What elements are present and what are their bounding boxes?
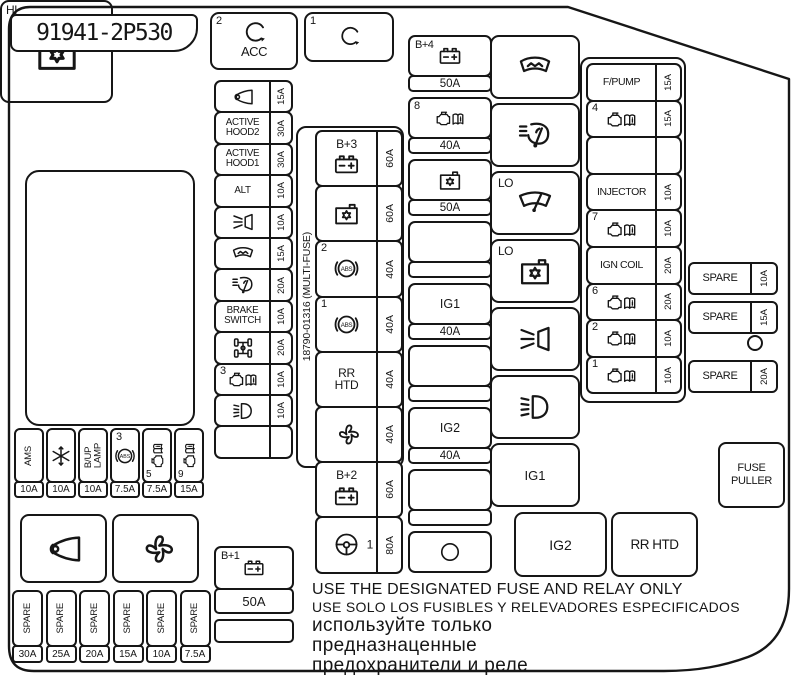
fuse-symbol-cell: [216, 396, 269, 425]
amp-rating: 7.5A: [115, 484, 135, 495]
amp-rating: 20A: [663, 293, 674, 310]
fuse-label: ACTIVEHOOD1: [226, 149, 260, 170]
fuse-symbol-cell: [317, 187, 376, 240]
fuse-symbol-cell: 4: [588, 102, 655, 137]
fuse-slot: RRHTD40A: [315, 351, 403, 408]
driveline-icon: [231, 336, 255, 360]
amp-rating: 40A: [384, 370, 396, 389]
amp-rating: 20A: [276, 339, 287, 356]
fuse-rating-cell: 10A: [269, 396, 291, 425]
fuse-label: IG1: [440, 297, 460, 311]
amp-rating: 20A: [759, 368, 770, 385]
amp-rating: 10A: [276, 308, 287, 325]
fuse-rating-cell: 40A: [376, 408, 401, 461]
relay-slot: [490, 375, 580, 439]
defroster-icon: [231, 242, 255, 266]
fuse-symbol-cell: [46, 428, 76, 483]
fuse-rating-cell: 50A: [408, 199, 492, 216]
fuse-rating-cell: 10A: [655, 321, 680, 356]
fuse-slot: INJECTOR10A: [586, 173, 682, 212]
amp-rating: 10A: [52, 484, 69, 495]
washer-wiper-icon: [517, 117, 553, 153]
fuse-slot: [586, 136, 682, 175]
fuse-symbol-cell: [216, 208, 269, 237]
engine-book-icon: [606, 219, 637, 239]
relay-number: 2: [216, 15, 222, 27]
fuse-symbol-cell: RRHTD: [317, 353, 376, 406]
svg-text:ABS: ABS: [120, 453, 131, 459]
fuse-label: ACTIVEHOOD2: [226, 118, 260, 139]
note-line: USE SOLO LOS FUSIBLES Y RELEVADORES ESPE…: [312, 599, 798, 616]
fan-icon: [332, 420, 361, 449]
fuse-puller-box: FUSE PULLER: [718, 442, 785, 508]
fuse-label: B+1: [221, 550, 239, 562]
fuse-number: 1: [592, 359, 598, 371]
relay-slot: LO: [490, 239, 580, 303]
fuse-label: SPARE: [23, 603, 33, 634]
fuse-slot: 915A: [174, 428, 204, 498]
amp-rating: 30A: [276, 151, 287, 168]
relay-ig2-box: IG2: [514, 512, 607, 577]
fuse-rating-cell: 25A: [46, 645, 77, 663]
wiper-icon: [517, 185, 553, 221]
fuse-slot: 840A: [408, 97, 492, 154]
fuse-symbol-cell: 1ABS: [317, 298, 376, 351]
relay-label: HI: [6, 3, 17, 17]
fuse-rating-cell: 7.5A: [142, 481, 172, 498]
amp-rating: 60A: [384, 204, 396, 223]
fuse-rating-cell: 10A: [78, 481, 108, 498]
note-line: предохранители и реле: [312, 656, 798, 675]
fuse-slot: SPARE20A: [79, 590, 110, 663]
fuse-label: BRAKESWITCH: [224, 306, 261, 327]
fuse-rating-cell: 10A: [14, 481, 44, 498]
multifuse-code: 18790-01316 (MULTI-FUSE): [297, 128, 316, 466]
amp-rating: 20A: [663, 257, 674, 274]
module-icon: [517, 253, 553, 289]
amp-rating: 30A: [276, 120, 287, 137]
fuse-rating-cell: 40A: [408, 447, 492, 464]
note-line: предназнаценные: [312, 636, 798, 655]
fuse-slot: 57.5A: [142, 428, 172, 498]
fuse-rating-cell: 15A: [655, 102, 680, 137]
amp-rating: 10A: [759, 270, 770, 287]
fuse-symbol-cell: B+2: [317, 463, 376, 516]
position-label: LO: [498, 244, 513, 258]
relay-slot: LO: [490, 171, 580, 235]
bottom-left-fuse-row: AMS10A10AB/UPLAMP10A3ABS7.5A57.5A915A: [14, 428, 204, 498]
fuse-rating-cell: 10A: [750, 264, 776, 293]
battery-icon: [437, 43, 463, 69]
fuse-slot: B+1: [214, 546, 294, 590]
fuse-rating-cell: 15A: [113, 645, 144, 663]
fuse-number: 2: [321, 243, 327, 255]
fuse-rating-cell: 15A: [750, 303, 776, 332]
fuse-label: SPARE: [190, 603, 200, 634]
fuse-label: B/UPLAMP: [84, 443, 103, 468]
amp-rating: 30A: [19, 649, 37, 660]
fuse-slot: [408, 221, 492, 278]
lowbeam-icon: [517, 389, 553, 425]
fuse-symbol-cell: [408, 469, 492, 511]
engine-book-icon: [606, 109, 637, 129]
fan-icon: [134, 529, 178, 569]
fuse-label: IGN COIL: [600, 260, 643, 271]
fuse-rating-cell: 60A: [376, 463, 401, 516]
fuse-slot: 2ABS40A: [315, 240, 403, 297]
amp-rating: 50A: [242, 594, 265, 609]
fuse-symbol-cell: ACTIVEHOOD2: [216, 113, 269, 142]
fuse-rating-cell: 60A: [376, 187, 401, 240]
fuse-symbol-cell: B+4: [408, 35, 492, 77]
fuse-label: IG1: [525, 468, 546, 483]
fuse-symbol-cell: 7: [588, 211, 655, 246]
part-number-label: 91941-2P530: [10, 14, 198, 52]
warning-notes: USE THE DESIGNATED FUSE AND RELAY ONLY U…: [312, 581, 798, 675]
amp-rating: 7.5A: [185, 649, 206, 660]
fuse-label: SPARE: [157, 603, 167, 634]
relay-rr-htd-box: RR HTD: [611, 512, 698, 577]
center-fuse-column: B+450A840A50AIG140AIG240A: [408, 35, 492, 578]
fuse-number: 4: [592, 103, 598, 115]
fuse-symbol-cell: 2ABS: [317, 242, 376, 295]
amp-rating: 10A: [153, 649, 171, 660]
fuse-symbol-cell: [216, 82, 269, 111]
washer-wiper-icon: [231, 273, 255, 297]
fuse-rating-cell: 10A: [269, 302, 291, 331]
fuse-number: 6: [592, 286, 598, 298]
fuse-slot: BRAKESWITCH10A: [214, 300, 293, 333]
relay-slot: [490, 103, 580, 167]
fuse-label: B+3: [336, 138, 357, 151]
relay-label: ACC: [241, 44, 267, 59]
amp-rating: 10A: [20, 484, 37, 495]
fuse-symbol-cell: 2: [588, 321, 655, 356]
bottom-relay-boxes: [20, 514, 199, 583]
fuse-rating-cell: 15A: [269, 239, 291, 268]
b-plus-1-group: B+1 50A: [214, 546, 294, 643]
abs-icon: ABS: [113, 444, 137, 468]
amp-rating: 25A: [52, 649, 70, 660]
fuse-rating-cell: 15A: [269, 82, 291, 111]
fuse-slot: B/UPLAMP10A: [78, 428, 108, 498]
fuse-number: 9: [178, 469, 184, 480]
battery-icon: [332, 482, 361, 511]
fuse-slot: 1ABS40A: [315, 296, 403, 353]
fuse-symbol-cell: 1: [588, 358, 655, 393]
fuse-rating-cell: 20A: [655, 248, 680, 283]
fuse-label: INJECTOR: [597, 187, 646, 198]
fuse-symbol-cell: SPARE: [79, 590, 110, 647]
amp-rating: 20A: [276, 277, 287, 294]
fuse-slot: SPARE25A: [46, 590, 77, 663]
fuse-slot: 20A: [214, 331, 293, 364]
fuse-rating-cell: 10A: [269, 365, 291, 394]
bottom-spare-row: SPARE30ASPARE25ASPARE20ASPARE15ASPARE10A…: [12, 590, 211, 663]
fuse-slot: 710A: [586, 209, 682, 248]
spare-fuse-column: SPARE10ASPARE15ASPARE20A: [688, 262, 778, 393]
fuse-symbol-cell: 3: [216, 365, 269, 394]
fuse-slot: 415A: [586, 100, 682, 139]
fuse-rating-cell: 10A: [655, 358, 680, 393]
fuse-slot: SPARE15A: [113, 590, 144, 663]
fuse-label: SPARE: [56, 603, 66, 634]
amp-rating: 15A: [276, 88, 287, 105]
fuse-slot: SPARE10A: [146, 590, 177, 663]
fuse-slot: SPARE20A: [688, 360, 778, 393]
engine-book-icon: [606, 328, 637, 348]
fuse-slot: 210A: [586, 319, 682, 358]
fuse-label: SPARE: [703, 312, 738, 324]
fuse-rating-cell: 40A: [376, 353, 401, 406]
fuse-slot: [214, 425, 293, 458]
fuse-label: F/PUMP: [603, 77, 640, 88]
fuse-symbol-cell: BRAKESWITCH: [216, 302, 269, 331]
fuse-slot: 60A: [315, 185, 403, 242]
amp-rating: 40A: [384, 315, 396, 334]
relay-1-box: 1: [304, 12, 394, 62]
amp-rating: 10A: [276, 182, 287, 199]
relay-slot: [20, 514, 107, 583]
amp-rating: 10A: [663, 330, 674, 347]
fuse-symbol-cell: AMS: [14, 428, 44, 483]
position-label: LO: [498, 176, 513, 190]
fuse-label: SPARE: [703, 273, 738, 285]
fuse-rating-cell: [655, 138, 680, 173]
multifuse-code-text: 18790-01316 (MULTI-FUSE): [301, 232, 313, 361]
engine-book-icon: [228, 369, 258, 389]
fuse-slot: SPARE7.5A: [180, 590, 211, 663]
relay-number: 1: [310, 15, 316, 27]
fuse-symbol-cell: ACTIVEHOOD1: [216, 145, 269, 174]
fuse-slot: IG240A: [408, 407, 492, 464]
engine-fusebox-diagram: 91941-2P530 2 ACC 1 15AACTIVEHOOD230AACT…: [0, 0, 800, 679]
headlamp-washer-icon: [231, 210, 255, 234]
fuse-slot: ACTIVEHOOD230A: [214, 111, 293, 144]
fuse-label: SPARE: [703, 371, 738, 383]
amp-rating: 10A: [663, 220, 674, 237]
amp-rating: 40A: [384, 425, 396, 444]
fuse-slot: B+260A: [315, 461, 403, 518]
amp-rating: 10A: [276, 214, 287, 231]
fuse-symbol-cell: 9: [174, 428, 204, 483]
fuse-slot: SPARE15A: [688, 301, 778, 334]
fuse-rating-cell: 60A: [376, 132, 401, 185]
fuse-rating-cell: [408, 261, 492, 278]
fuse-slot: 310A: [214, 363, 293, 396]
fuse-symbol-cell: [408, 159, 492, 201]
abs-icon: ABS: [332, 254, 361, 283]
empty-slot: [214, 619, 294, 643]
fuse-rating-cell: 10A: [46, 481, 76, 498]
fuse-label: RRHTD: [335, 367, 359, 392]
relay-slot: [490, 307, 580, 371]
fuse-symbol-cell: SPARE: [690, 362, 750, 391]
fuse-rating-cell: 30A: [12, 645, 43, 663]
fuse-slot: ALT10A: [214, 174, 293, 207]
fuse-symbol-cell: [216, 427, 269, 456]
amp-rating: 15A: [663, 74, 674, 91]
fuse-rating-cell: 10A: [146, 645, 177, 663]
fuse-symbol-cell: [408, 531, 492, 573]
amp-rating: 40A: [440, 450, 460, 462]
fuse-label: AMS: [24, 446, 34, 466]
fuse-rating-cell: [269, 427, 291, 456]
fuse-slot: IG140A: [408, 283, 492, 340]
fuse-symbol-cell: 5: [142, 428, 172, 483]
fuse-rating-cell: 40A: [376, 298, 401, 351]
turn-arrow-icon: [335, 23, 363, 51]
fuse-number: 8: [414, 100, 420, 112]
engine-book-icon: [149, 443, 166, 469]
fuse-symbol-cell: F/PUMP: [588, 65, 655, 100]
fuse-rating-cell: 20A: [269, 333, 291, 362]
fuse-slot: 3ABS7.5A: [110, 428, 140, 498]
svg-text:ABS: ABS: [341, 321, 353, 328]
fuse-slot: 15A: [214, 80, 293, 113]
fuse-symbol-cell: IGN COIL: [588, 248, 655, 283]
fuse-rating-cell: 20A: [655, 285, 680, 320]
fuse-symbol-cell: 1: [317, 518, 376, 571]
svg-text:ABS: ABS: [341, 266, 353, 273]
fuse-slot: 15A: [214, 237, 293, 270]
fuse-symbol-cell: [317, 408, 376, 461]
fuse-symbol-cell: B+3: [317, 132, 376, 185]
fuse-number: 1: [367, 539, 373, 552]
amp-rating: 10A: [84, 484, 101, 495]
right-fuse-column: F/PUMP15A415AINJECTOR10A710AIGN COIL20A6…: [586, 63, 682, 394]
fuse-rating-cell: 10A: [269, 176, 291, 205]
relay-slot: [112, 514, 199, 583]
foglight-icon: [231, 399, 255, 423]
engine-book-icon: [606, 292, 637, 312]
fuse-symbol-cell: [216, 333, 269, 362]
mounting-hole: [747, 335, 763, 351]
fuse-slot: B+360A: [315, 130, 403, 187]
fuse-rating-cell: 40A: [408, 137, 492, 154]
blank-module-area: [25, 170, 195, 426]
fuse-symbol-cell: 8: [408, 97, 492, 139]
fuse-rating-cell: 10A: [269, 208, 291, 237]
fuse-rating-cell: 20A: [269, 270, 291, 299]
fuse-slot: B+450A: [408, 35, 492, 92]
amp-rating: 15A: [276, 245, 287, 262]
amp-rating: 20A: [86, 649, 104, 660]
fuse-rating-cell: 20A: [750, 362, 776, 391]
amp-rating: 15A: [119, 649, 137, 660]
amp-rating: 40A: [440, 326, 460, 338]
fuse-rating-cell: 10A: [655, 211, 680, 246]
fuse-rating-cell: 15A: [655, 65, 680, 100]
relay-slot: IG1: [490, 443, 580, 507]
fuse-number: 7: [592, 212, 598, 224]
fuse-slot: F/PUMP15A: [586, 63, 682, 102]
fuse-rating-cell: 7.5A: [180, 645, 211, 663]
defroster-icon: [517, 49, 553, 85]
fuse-rating-cell: 20A: [79, 645, 110, 663]
fuse-slot: 620A: [586, 283, 682, 322]
fuse-rating-cell: 30A: [269, 145, 291, 174]
fuse-label: B+2: [336, 469, 357, 482]
fuse-symbol-cell: B/UPLAMP: [78, 428, 108, 483]
fuse-symbol-cell: ALT: [216, 176, 269, 205]
fuse-symbol-cell: SPARE: [690, 303, 750, 332]
fuse-rating-cell: [408, 509, 492, 526]
fuse-symbol-cell: 3ABS: [110, 428, 140, 483]
engine-book-icon: [435, 108, 465, 128]
fuse-symbol-cell: SPARE: [146, 590, 177, 647]
amp-rating: 10A: [276, 402, 287, 419]
amp-rating: 50A: [440, 202, 460, 214]
fuse-symbol-cell: IG1: [408, 283, 492, 325]
fuse-slot: [408, 345, 492, 402]
fuse-label: SPARE: [90, 603, 100, 634]
fuse-symbol-cell: SPARE: [113, 590, 144, 647]
amp-rating: 60A: [384, 149, 396, 168]
fuse-slot: 10A: [214, 394, 293, 427]
fuse-rating-cell: 50A: [408, 75, 492, 92]
fuse-slot: 180A: [315, 516, 403, 573]
fuse-symbol-cell: [588, 138, 655, 173]
engine-book-icon: [606, 365, 637, 385]
amp-rating: 40A: [440, 140, 460, 152]
fuse-slot: 10A: [46, 428, 76, 498]
fuse-symbol-cell: [408, 221, 492, 263]
amp-rating: 60A: [384, 480, 396, 499]
fuse-slot: SPARE10A: [688, 262, 778, 295]
horn-icon: [42, 529, 86, 569]
fuse-rating-cell: 10A: [655, 175, 680, 210]
fuse-number: 2: [592, 322, 598, 334]
fuse-label: SPARE: [123, 603, 133, 634]
amp-rating: 50A: [440, 78, 460, 90]
relay-slot: [490, 35, 580, 99]
amp-rating: 80A: [384, 536, 396, 555]
amp-rating: 10A: [276, 371, 287, 388]
amp-rating: 15A: [759, 309, 770, 326]
amp-rating: 40A: [384, 260, 396, 279]
fuse-slot: SPARE30A: [12, 590, 43, 663]
snowflake-icon: [49, 444, 73, 468]
amp-rating: 15A: [180, 484, 197, 495]
fuse-rating-cell: 15A: [174, 481, 204, 498]
module-icon: [332, 199, 361, 228]
fuse-number: 3: [116, 431, 122, 443]
note-line: USE THE DESIGNATED FUSE AND RELAY ONLY: [312, 581, 798, 599]
fuse-symbol-cell: IG2: [408, 407, 492, 449]
fuse-symbol-cell: 6: [588, 285, 655, 320]
fuse-slot: 110A: [586, 356, 682, 395]
fuse-slot: AMS10A: [14, 428, 44, 498]
fuse-label: IG2: [440, 421, 460, 435]
fuse-symbol-cell: INJECTOR: [588, 175, 655, 210]
abs-icon: ABS: [332, 310, 361, 339]
amp-rating: 10A: [663, 184, 674, 201]
fuse-slot: [408, 469, 492, 526]
steering-icon: [332, 530, 361, 559]
fuse-rating-cell: 40A: [376, 242, 401, 295]
fuse-label: ALT: [234, 186, 250, 196]
relay-acc-box: 2 ACC: [210, 12, 298, 70]
fuse-symbol-cell: [408, 345, 492, 387]
fuse-symbol-cell: [216, 239, 269, 268]
battery-icon: [332, 150, 361, 179]
horn-icon: [231, 85, 255, 109]
fuse-symbol-cell: SPARE: [12, 590, 43, 647]
fuse-rating-cell: 30A: [269, 113, 291, 142]
left-fuse-column: 15AACTIVEHOOD230AACTIVEHOOD130AALT10A10A…: [214, 80, 293, 459]
fuse-symbol-cell: [216, 270, 269, 299]
